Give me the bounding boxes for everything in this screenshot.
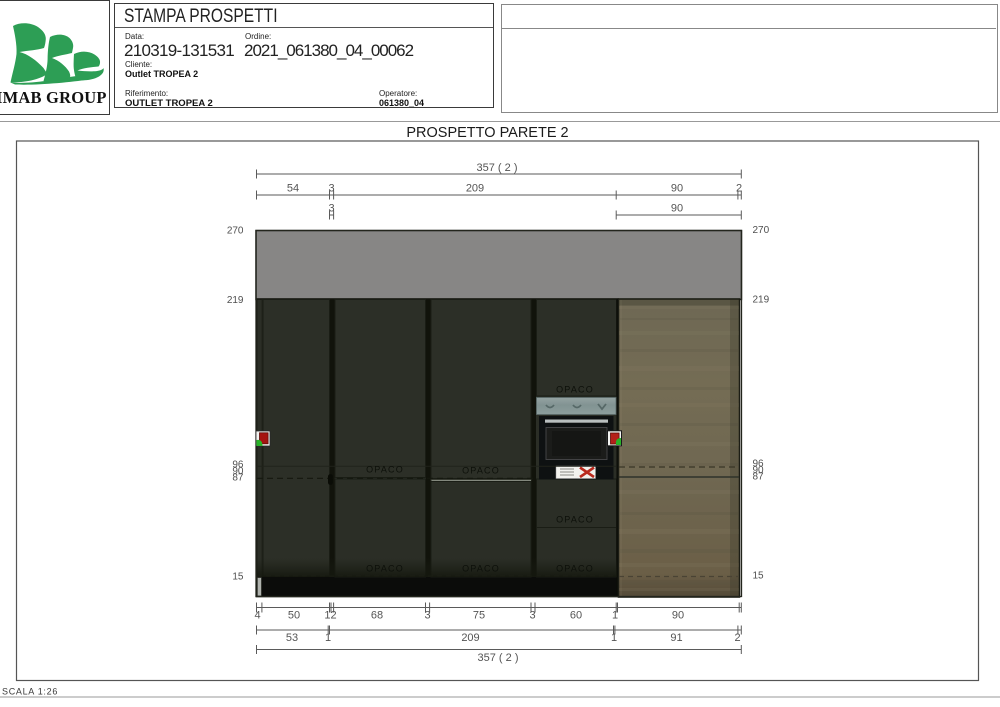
svg-text:3: 3	[424, 610, 430, 622]
svg-text:1: 1	[611, 632, 617, 644]
svg-text:75: 75	[473, 610, 485, 622]
svg-text:357 ( 2 ): 357 ( 2 )	[477, 162, 518, 174]
svg-text:OPACO: OPACO	[366, 465, 404, 475]
svg-text:357 ( 2 ): 357 ( 2 )	[478, 652, 519, 664]
svg-text:12: 12	[324, 610, 336, 622]
svg-text:87: 87	[753, 472, 765, 483]
svg-text:90: 90	[671, 183, 683, 195]
svg-text:4: 4	[254, 610, 260, 622]
svg-text:OPACO: OPACO	[462, 564, 500, 574]
svg-text:87: 87	[232, 473, 244, 484]
svg-text:OPACO: OPACO	[556, 385, 594, 395]
svg-text:1: 1	[325, 632, 331, 644]
svg-text:209: 209	[466, 183, 484, 195]
svg-text:219: 219	[227, 295, 244, 306]
svg-text:OPACO: OPACO	[462, 466, 500, 476]
svg-text:91: 91	[670, 632, 682, 644]
svg-text:3: 3	[529, 610, 535, 622]
svg-text:2: 2	[734, 632, 740, 644]
svg-text:90: 90	[671, 203, 683, 215]
svg-text:2: 2	[736, 183, 742, 195]
svg-text:OPACO: OPACO	[556, 515, 594, 525]
svg-text:53: 53	[286, 632, 298, 644]
svg-text:219: 219	[753, 295, 770, 306]
svg-text:60: 60	[570, 610, 582, 622]
svg-text:OPACO: OPACO	[366, 564, 404, 574]
svg-text:SCALA 1:26: SCALA 1:26	[2, 687, 58, 697]
svg-text:3: 3	[328, 183, 334, 195]
svg-text:54: 54	[287, 183, 299, 195]
svg-text:50: 50	[288, 610, 300, 622]
svg-text:15: 15	[753, 571, 765, 582]
svg-text:3: 3	[328, 203, 334, 215]
svg-text:OPACO: OPACO	[556, 564, 594, 574]
svg-text:15: 15	[232, 572, 244, 583]
svg-text:1: 1	[612, 610, 618, 622]
svg-text:270: 270	[753, 225, 770, 236]
svg-text:209: 209	[461, 632, 479, 644]
svg-text:90: 90	[672, 610, 684, 622]
svg-text:68: 68	[371, 610, 383, 622]
svg-text:270: 270	[227, 226, 244, 237]
